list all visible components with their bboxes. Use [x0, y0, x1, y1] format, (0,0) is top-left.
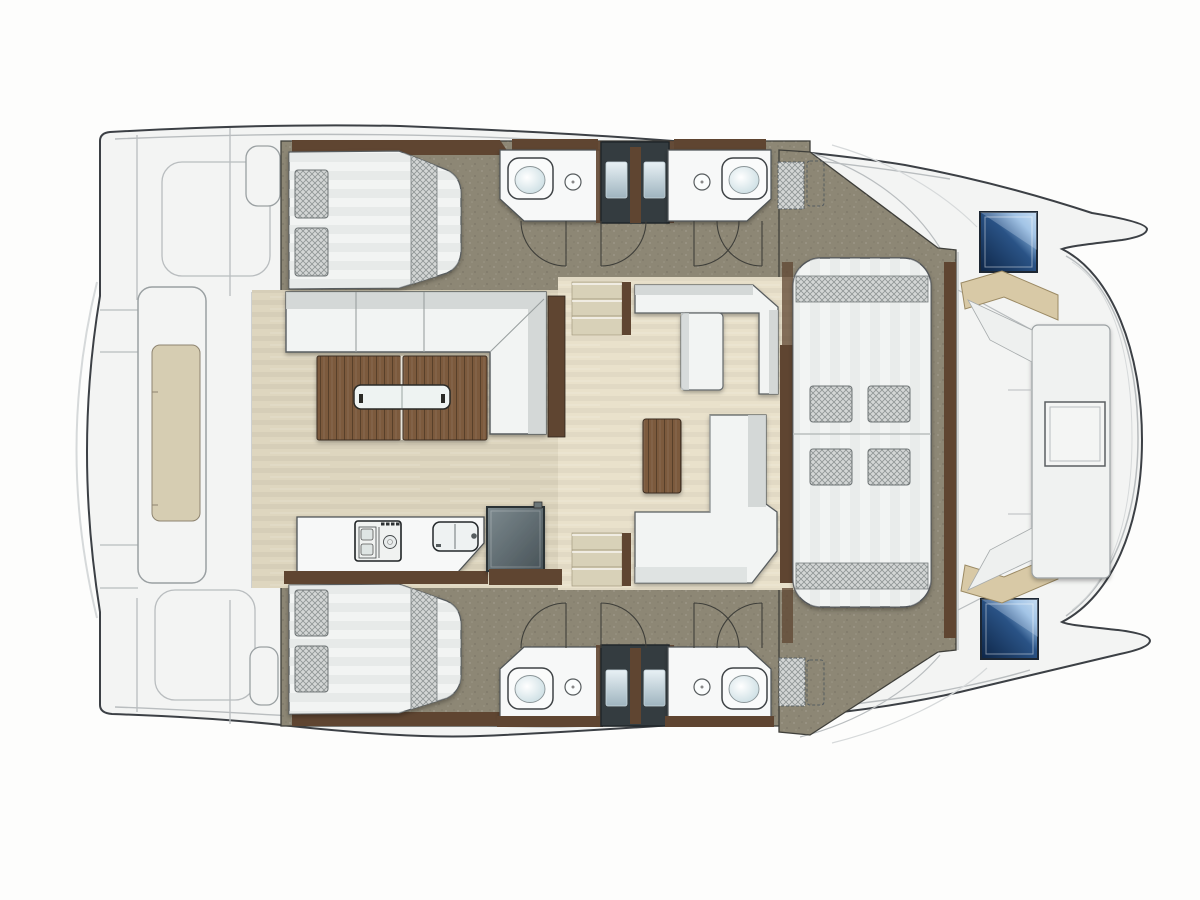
head-port-aft — [500, 139, 600, 221]
pillow — [295, 170, 328, 218]
shower-tray — [606, 670, 627, 706]
berth-runner-cushion — [411, 585, 437, 715]
coffee-table — [643, 419, 681, 493]
berth-runner-cushion — [411, 152, 437, 289]
shower-module-port — [596, 141, 674, 223]
transom-seat-starboard — [250, 647, 278, 705]
cockpit-bulkhead-wood — [548, 296, 565, 437]
deck-vent — [778, 162, 804, 209]
galley-sink — [433, 522, 478, 551]
pillow — [295, 228, 328, 276]
sunbed-runner-cushion — [796, 276, 928, 302]
galley-stove — [355, 521, 401, 561]
shower-tray — [644, 670, 665, 706]
lounge-cushion — [868, 449, 910, 485]
head-bulkhead-wood — [497, 716, 603, 727]
pillow — [295, 590, 328, 636]
shower-tray — [644, 162, 665, 198]
companionway-stairs-starboard — [572, 533, 631, 586]
deck-vent — [779, 658, 805, 706]
stern-platform — [138, 287, 206, 583]
forward-lounge — [793, 258, 956, 638]
floor-plan-canvas — [0, 0, 1200, 900]
shower-tray — [606, 162, 627, 198]
shower-module-starboard — [596, 645, 674, 727]
lounge-side-wood — [944, 262, 956, 638]
companionway-stairs-port — [572, 282, 631, 335]
refrigerator — [487, 502, 544, 571]
tender-platform-teak — [152, 345, 200, 521]
cockpit-table — [317, 356, 487, 440]
catamaran-floor-plan — [0, 0, 1200, 900]
head-starboard-aft — [497, 647, 603, 727]
transom-seat-port — [246, 146, 280, 206]
saloon-fwd-bulkhead-wood — [780, 345, 794, 583]
sunbed-runner-cushion — [796, 563, 928, 589]
lounge-cushion — [810, 449, 852, 485]
faucet — [471, 533, 477, 539]
refrigerator-wood-base — [489, 569, 562, 585]
bow-table — [1045, 402, 1105, 466]
lounge-cushion — [868, 386, 910, 422]
pillow — [295, 646, 328, 692]
head-bulkhead-wood — [674, 139, 766, 151]
head-bulkhead-wood — [665, 716, 774, 727]
head-bulkhead-wood — [512, 139, 598, 151]
head-starboard-fwd — [665, 647, 774, 727]
lounge-cushion — [810, 386, 852, 422]
head-port-fwd — [668, 139, 771, 221]
galley-wood-front — [284, 571, 488, 584]
cockpit-dining — [286, 292, 565, 440]
